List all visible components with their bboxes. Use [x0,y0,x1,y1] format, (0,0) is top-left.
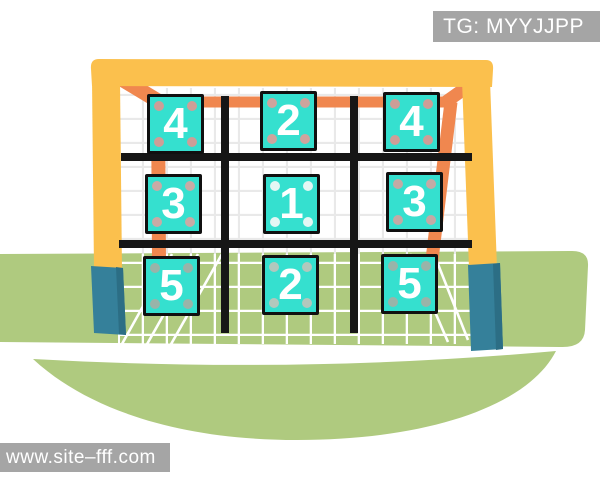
goal-left-post [92,80,122,270]
target-tile-r1c2: 2 [260,91,317,151]
target-tile-r3c3: 5 [381,254,438,314]
watermark-url: www.site–fff.com [0,443,170,472]
target-tile-r3c2: 2 [262,255,319,315]
tile-number: 5 [146,259,197,313]
goal-crossbar [91,59,493,87]
target-tile-r1c3: 4 [383,92,440,152]
goal-scene [0,0,600,480]
target-tile-r2c3: 3 [386,172,443,232]
tile-number: 4 [150,97,201,151]
goal-target-illustration: 4 2 4 3 1 3 5 2 5 TG: MYYJJPP www.site–f… [0,0,600,480]
target-tile-r2c1: 3 [145,174,202,234]
tile-number: 5 [384,257,435,311]
target-tile-r1c1: 4 [147,94,204,154]
tile-number: 4 [386,95,437,149]
tile-number: 3 [389,175,440,229]
target-tile-r3c1: 5 [143,256,200,316]
tile-number: 2 [263,94,314,148]
tile-number: 3 [148,177,199,231]
tile-number: 2 [265,258,316,312]
grass-foreground-mound [33,351,556,440]
tile-number: 1 [266,177,317,231]
target-tile-r2c2: 1 [263,174,320,234]
tag-label: TG: MYYJJPP [433,11,600,42]
